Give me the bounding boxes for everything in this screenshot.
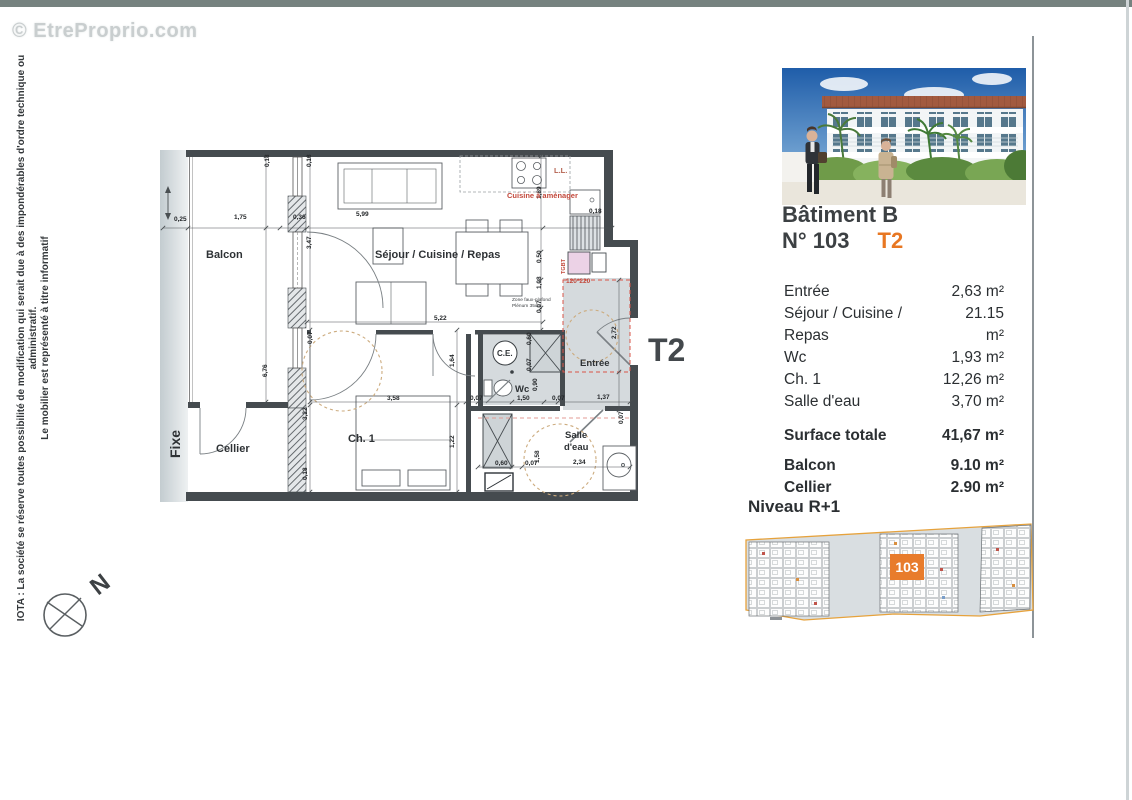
window-wall [190, 157, 307, 492]
dimension-label: 1,75 [234, 214, 247, 221]
dimension-label: 0,07 [552, 395, 565, 402]
cellier-label: Cellier [216, 443, 250, 455]
ce-label: C.E. [497, 349, 513, 358]
table-row: Entrée2,63 m² [784, 281, 1004, 303]
dimension-label: 0,90 [532, 378, 539, 391]
fixe-strip: Fixe [160, 150, 188, 502]
salle-deau-label-1: Salle [565, 430, 587, 441]
dimension-label: 1,08 [536, 276, 543, 289]
dimension-label: 0,18 [302, 467, 309, 480]
floor-plan: Fixe [160, 140, 665, 510]
dimension-label: 5,99 [356, 211, 369, 218]
row-label: Balcon [784, 455, 836, 477]
row-label: Entrée [784, 281, 830, 303]
scanned-listing-page: © EtreProprio.com IOTA : La société se r… [0, 0, 1132, 800]
building-photo [782, 68, 1026, 205]
zone-note-1: Zone faux-plafond [512, 297, 551, 303]
row-label: Wc [784, 347, 806, 369]
fixe-label: Fixe [167, 430, 183, 458]
scan-edge-artifact [0, 0, 1132, 7]
row-label: Salle d'eau [784, 391, 860, 413]
row-label: Cellier [784, 477, 831, 499]
salle-deau-label-2: d'eau [564, 442, 589, 453]
dimension-label: 0,18 [264, 154, 271, 167]
dimension-label: 0,36 [293, 214, 306, 221]
table-row: Wc1,93 m² [784, 347, 1004, 369]
level-site-plan: 103 [744, 518, 1036, 622]
row-value: 3,70 m² [951, 391, 1004, 413]
compass-needle-2 [50, 598, 81, 629]
row-value: 9.10 m² [951, 455, 1004, 477]
dimension-label: 0,07 [307, 331, 314, 344]
north-label: N [85, 569, 115, 601]
row-value: 1,93 m² [951, 347, 1004, 369]
compass: N [30, 550, 160, 670]
dimension-label: 2,34 [573, 459, 586, 466]
row-value: 2.90 m² [951, 477, 1004, 499]
total-label: Surface totale [784, 425, 887, 447]
level-title: Niveau R+1 [748, 497, 840, 517]
balcon-label: Balcon [206, 249, 243, 261]
building-name: Bâtiment B [782, 202, 903, 228]
unit-type: T2 [878, 228, 904, 253]
dimension-label: 3,47 [306, 236, 313, 249]
dimension-label: 0,18 [589, 208, 602, 215]
table-row: Balcon9.10 m² [784, 455, 1004, 477]
dimension-label: 0,50 [536, 250, 543, 263]
table-row: Ch. 112,26 m² [784, 369, 1004, 391]
cuisine-note: Cuisine à aménager [507, 191, 578, 200]
scan-edge-artifact-right [1126, 0, 1129, 800]
roof [822, 96, 1026, 107]
plan-type-label: T2 [648, 332, 685, 369]
dimension-label: 1,22 [449, 435, 456, 448]
row-value: 21.15 m² [945, 303, 1004, 347]
dimension-label: 5,22 [434, 315, 447, 322]
dimension-label: 1,50 [517, 395, 530, 402]
dimension-label: 2,72 [611, 326, 618, 339]
row-label: Séjour / Cuisine / Repas [784, 303, 945, 347]
door-size-note: 120*220 [566, 278, 591, 285]
dimension-label: 3,22 [302, 407, 309, 420]
dimension-label: 6,76 [262, 364, 269, 377]
table-row: Séjour / Cuisine / Repas21.15 m² [784, 303, 1004, 347]
row-value: 2,63 m² [951, 281, 1004, 303]
tgbt-note: TGBT [561, 258, 567, 274]
row-value: 12,26 m² [943, 369, 1004, 391]
dimension-label: 0,25 [174, 216, 187, 223]
ch1-label: Ch. 1 [348, 433, 375, 445]
zone-note-2: Plénum 35cm [512, 303, 541, 309]
wc-label: Wc [515, 384, 529, 395]
dimension-label: 0,07 [618, 411, 625, 424]
dimension-label: 1,58 [534, 450, 541, 463]
dimension-label: 1,37 [597, 394, 610, 401]
table-row: Cellier2.90 m² [784, 477, 1004, 499]
dimension-label: 0,18 [306, 154, 313, 167]
dimension-label: 0,60 [526, 332, 533, 345]
table-row: Salle d'eau3,70 m² [784, 391, 1004, 413]
table-total-row: Surface totale41,67 m² [784, 425, 1004, 447]
dimension-label: 1,64 [449, 354, 456, 367]
row-label: Ch. 1 [784, 369, 821, 391]
dimension-label: 0,60 [495, 460, 508, 467]
sejour-label: Séjour / Cuisine / Repas [375, 249, 500, 261]
dimension-label: 0,07 [470, 395, 483, 402]
lave-linge-note: L.L. [554, 166, 567, 175]
total-value: 41,67 m² [942, 425, 1004, 447]
unit-number: N° 103 [782, 228, 850, 253]
areas-table: Entrée2,63 m² Séjour / Cuisine / Repas21… [784, 281, 1004, 499]
dimension-label: 3,58 [387, 395, 400, 402]
entree-label: Entrée [580, 358, 610, 369]
unit-title-block: Bâtiment B N° 103T2 [782, 202, 903, 254]
unit-marker-label: 103 [895, 559, 919, 575]
dimension-label: 0,07 [526, 358, 533, 371]
